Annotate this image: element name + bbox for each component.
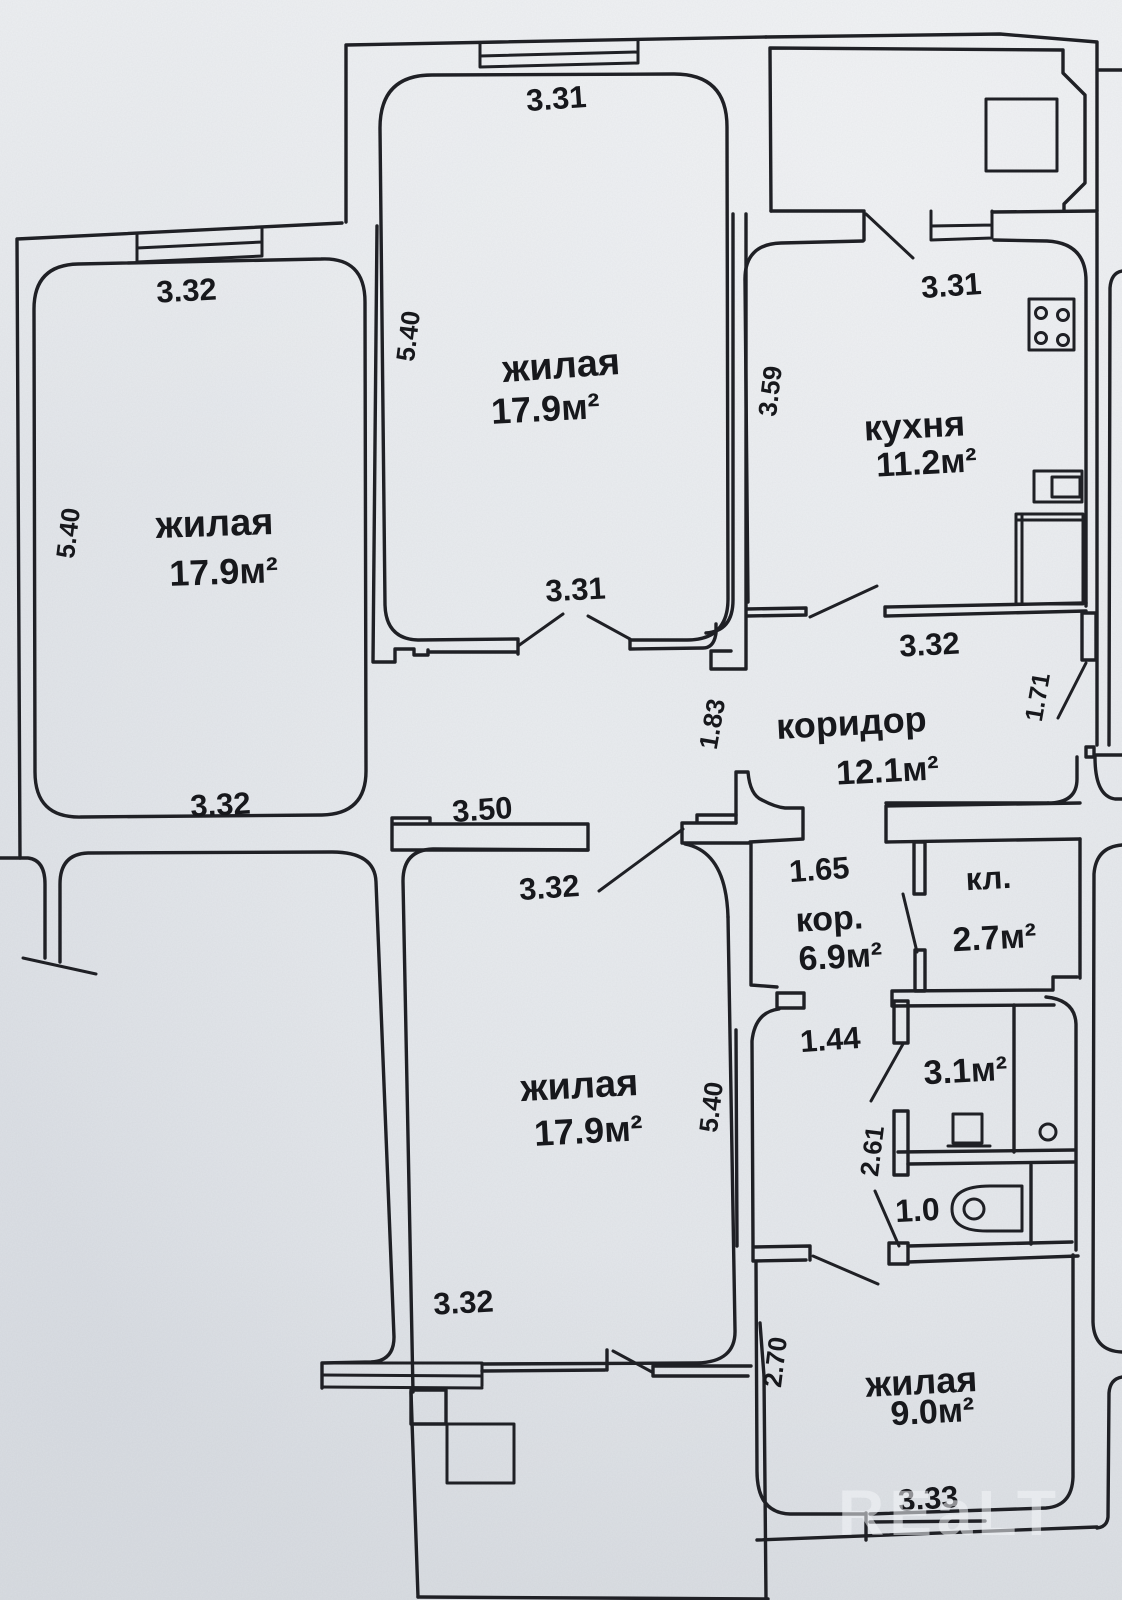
svg-text:1.0: 1.0 xyxy=(894,1191,940,1229)
svg-text:3.1м²: 3.1м² xyxy=(923,1050,1009,1092)
svg-text:1.65: 1.65 xyxy=(788,850,851,889)
svg-text:5.40: 5.40 xyxy=(390,309,426,363)
svg-text:2.61: 2.61 xyxy=(854,1124,890,1178)
svg-text:3.32: 3.32 xyxy=(189,785,251,823)
svg-text:жилая: жилая xyxy=(154,501,274,547)
svg-text:3.32: 3.32 xyxy=(518,868,581,907)
svg-text:9.0м²: 9.0м² xyxy=(890,1391,976,1433)
svg-text:коридор: коридор xyxy=(775,698,927,747)
svg-text:17.9м²: 17.9м² xyxy=(533,1107,644,1154)
svg-text:кор.: кор. xyxy=(795,898,864,939)
svg-text:кл.: кл. xyxy=(965,859,1012,897)
svg-text:3.32: 3.32 xyxy=(432,1283,494,1321)
svg-text:3.31: 3.31 xyxy=(920,266,983,305)
svg-text:3.32: 3.32 xyxy=(155,271,217,309)
svg-text:17.9м²: 17.9м² xyxy=(169,549,279,594)
svg-text:3.31: 3.31 xyxy=(525,79,588,118)
svg-text:жилая: жилая xyxy=(500,341,621,391)
svg-text:11.2м²: 11.2м² xyxy=(875,441,978,484)
svg-text:12.1м²: 12.1м² xyxy=(835,749,940,792)
svg-text:3.50: 3.50 xyxy=(451,790,514,829)
svg-text:6.9м²: 6.9м² xyxy=(798,936,884,978)
svg-text:3.59: 3.59 xyxy=(752,364,788,418)
svg-text:1.44: 1.44 xyxy=(799,1020,862,1059)
svg-text:2.70: 2.70 xyxy=(757,1335,793,1389)
svg-text:REaLT: REaLT xyxy=(838,1477,1061,1549)
svg-text:3.32: 3.32 xyxy=(898,625,960,663)
svg-text:3.31: 3.31 xyxy=(544,570,606,608)
svg-text:17.9м²: 17.9м² xyxy=(490,385,601,432)
svg-text:кухня: кухня xyxy=(863,402,966,448)
svg-text:жилая: жилая xyxy=(518,1062,639,1110)
svg-text:5.40: 5.40 xyxy=(693,1080,729,1134)
svg-text:5.40: 5.40 xyxy=(50,506,86,560)
svg-text:2.7м²: 2.7м² xyxy=(952,917,1038,959)
